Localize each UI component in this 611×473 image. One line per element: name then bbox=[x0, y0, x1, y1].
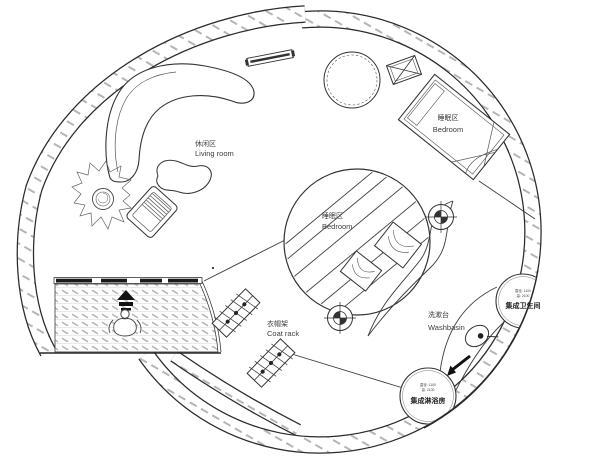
floor-plan-drawing: 休闲区 Living room 睡眠区 Bedroom 睡眠区 Bedroom … bbox=[0, 0, 611, 473]
door-panel bbox=[168, 279, 198, 283]
coffee-table bbox=[157, 160, 212, 193]
divider-hall-bath bbox=[282, 351, 403, 388]
label-coat-rack-zh: 衣帽架 bbox=[267, 319, 288, 328]
label-washbasin-zh: 洗漱台 bbox=[428, 310, 449, 319]
column-marker-icon bbox=[425, 201, 457, 233]
label-living-room-en: Living room bbox=[195, 149, 234, 158]
label-bathroom-pod-dim1: 直径: 1100 bbox=[515, 288, 531, 293]
ac-unit-icon bbox=[386, 55, 421, 84]
label-shower-pod-dim1: 直径: 1100 bbox=[420, 382, 436, 387]
label-shower-pod-dim2: 高: 2100 bbox=[422, 387, 435, 392]
label-bedroom-loft-zh: 睡眠区 bbox=[438, 114, 459, 122]
label-washbasin-en: Washbasin bbox=[428, 323, 465, 332]
coat-rack-item bbox=[245, 337, 297, 390]
door-panel bbox=[56, 279, 92, 283]
label-living-room-zh: 休闲区 bbox=[195, 139, 216, 148]
bedroom-circle-platform bbox=[271, 160, 442, 322]
label-coat-rack-en: Coat rack bbox=[267, 329, 299, 338]
door-panel bbox=[140, 279, 162, 283]
flow-arrow-icon bbox=[447, 356, 470, 376]
divider-hall-living bbox=[204, 240, 285, 281]
label-bedroom-center-en: Bedroom bbox=[322, 222, 352, 231]
floor-plan-page: 休闲区 Living room 睡眠区 Bedroom 睡眠区 Bedroom … bbox=[0, 0, 611, 473]
coat-rack-item bbox=[210, 287, 262, 340]
label-bedroom-center-zh: 睡眠区 bbox=[322, 212, 343, 220]
door-panel bbox=[101, 279, 127, 283]
label-bedroom-loft-en: Bedroom bbox=[433, 125, 463, 134]
lounge-chair bbox=[125, 185, 178, 239]
wall-shelf bbox=[245, 49, 296, 66]
entry-corridor bbox=[40, 281, 221, 353]
label-bathroom-pod-dim2: 高: 2100 bbox=[517, 293, 530, 298]
shower-pod bbox=[400, 368, 456, 424]
plan-dot bbox=[212, 267, 214, 269]
label-bathroom-pod-name: 集成卫生间 bbox=[505, 301, 541, 310]
round-table bbox=[324, 52, 380, 108]
label-shower-pod-name: 集成淋浴房 bbox=[410, 396, 446, 405]
entry-door-wall bbox=[54, 278, 202, 284]
